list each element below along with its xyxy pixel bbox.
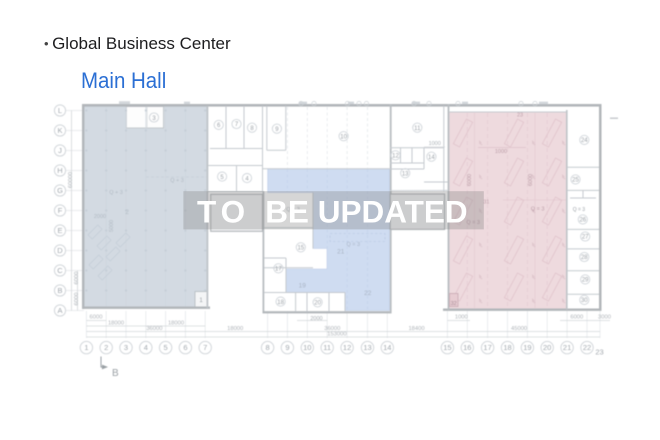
svg-text:TOBE UPDATED: TOBE UPDATED [197, 194, 468, 230]
